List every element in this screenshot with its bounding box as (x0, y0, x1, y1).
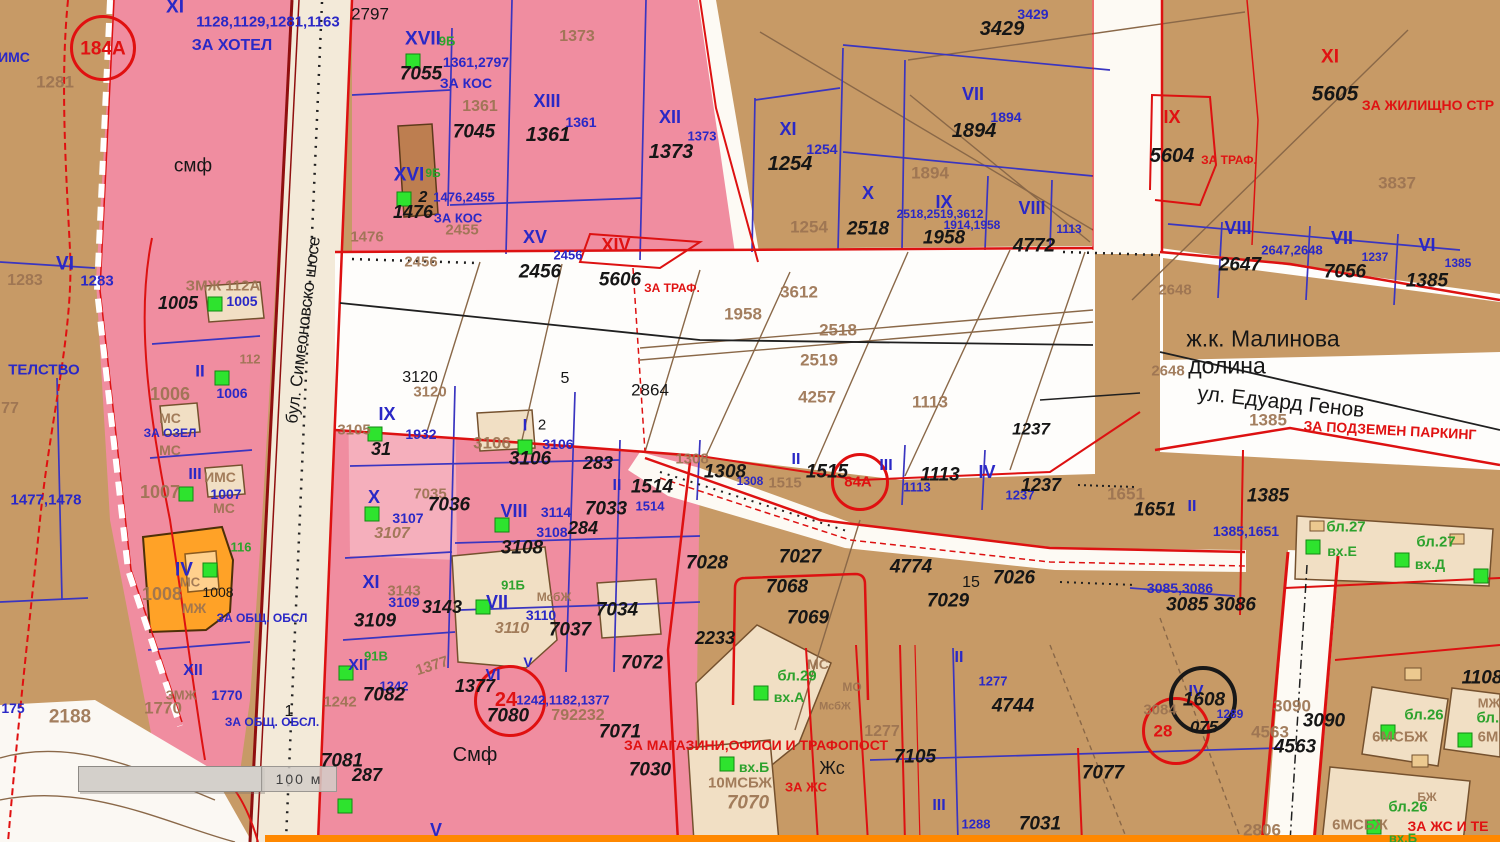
scale-bar (78, 766, 263, 792)
green-square-marker (406, 54, 421, 69)
green-square-marker (1474, 569, 1489, 584)
green-square-marker (518, 440, 533, 455)
green-square-marker (476, 600, 491, 615)
red-circle-annotation (474, 665, 546, 737)
cadastral-map-canvas[interactable]: 100 м XI1128,1129,1281,1163ЗА ХОТЕЛИМС12… (0, 0, 1500, 842)
green-square-marker (215, 371, 230, 386)
green-square-marker (179, 487, 194, 502)
green-square-marker (1306, 540, 1321, 555)
green-square-marker (368, 427, 383, 442)
scale-bar-label: 100 м (276, 771, 323, 787)
green-square-marker (203, 563, 218, 578)
red-circle-annotation (831, 453, 889, 511)
scale-bar-label-box: 100 м (261, 766, 337, 792)
green-square-marker (338, 799, 353, 814)
green-square-marker (1367, 820, 1382, 835)
green-square-marker (1395, 553, 1410, 568)
black-circle-annotation (1169, 666, 1237, 734)
bottom-orange-strip (265, 835, 1500, 842)
green-square-marker (720, 757, 735, 772)
green-square-marker (365, 507, 380, 522)
map-zones-layer (0, 0, 1500, 842)
red-circle-annotation (70, 15, 136, 81)
green-square-marker (754, 686, 769, 701)
green-square-marker (1458, 733, 1473, 748)
green-square-marker (397, 192, 412, 207)
green-square-marker (208, 297, 223, 312)
green-square-marker (495, 518, 510, 533)
green-square-marker (339, 666, 354, 681)
green-square-marker (1381, 725, 1396, 740)
